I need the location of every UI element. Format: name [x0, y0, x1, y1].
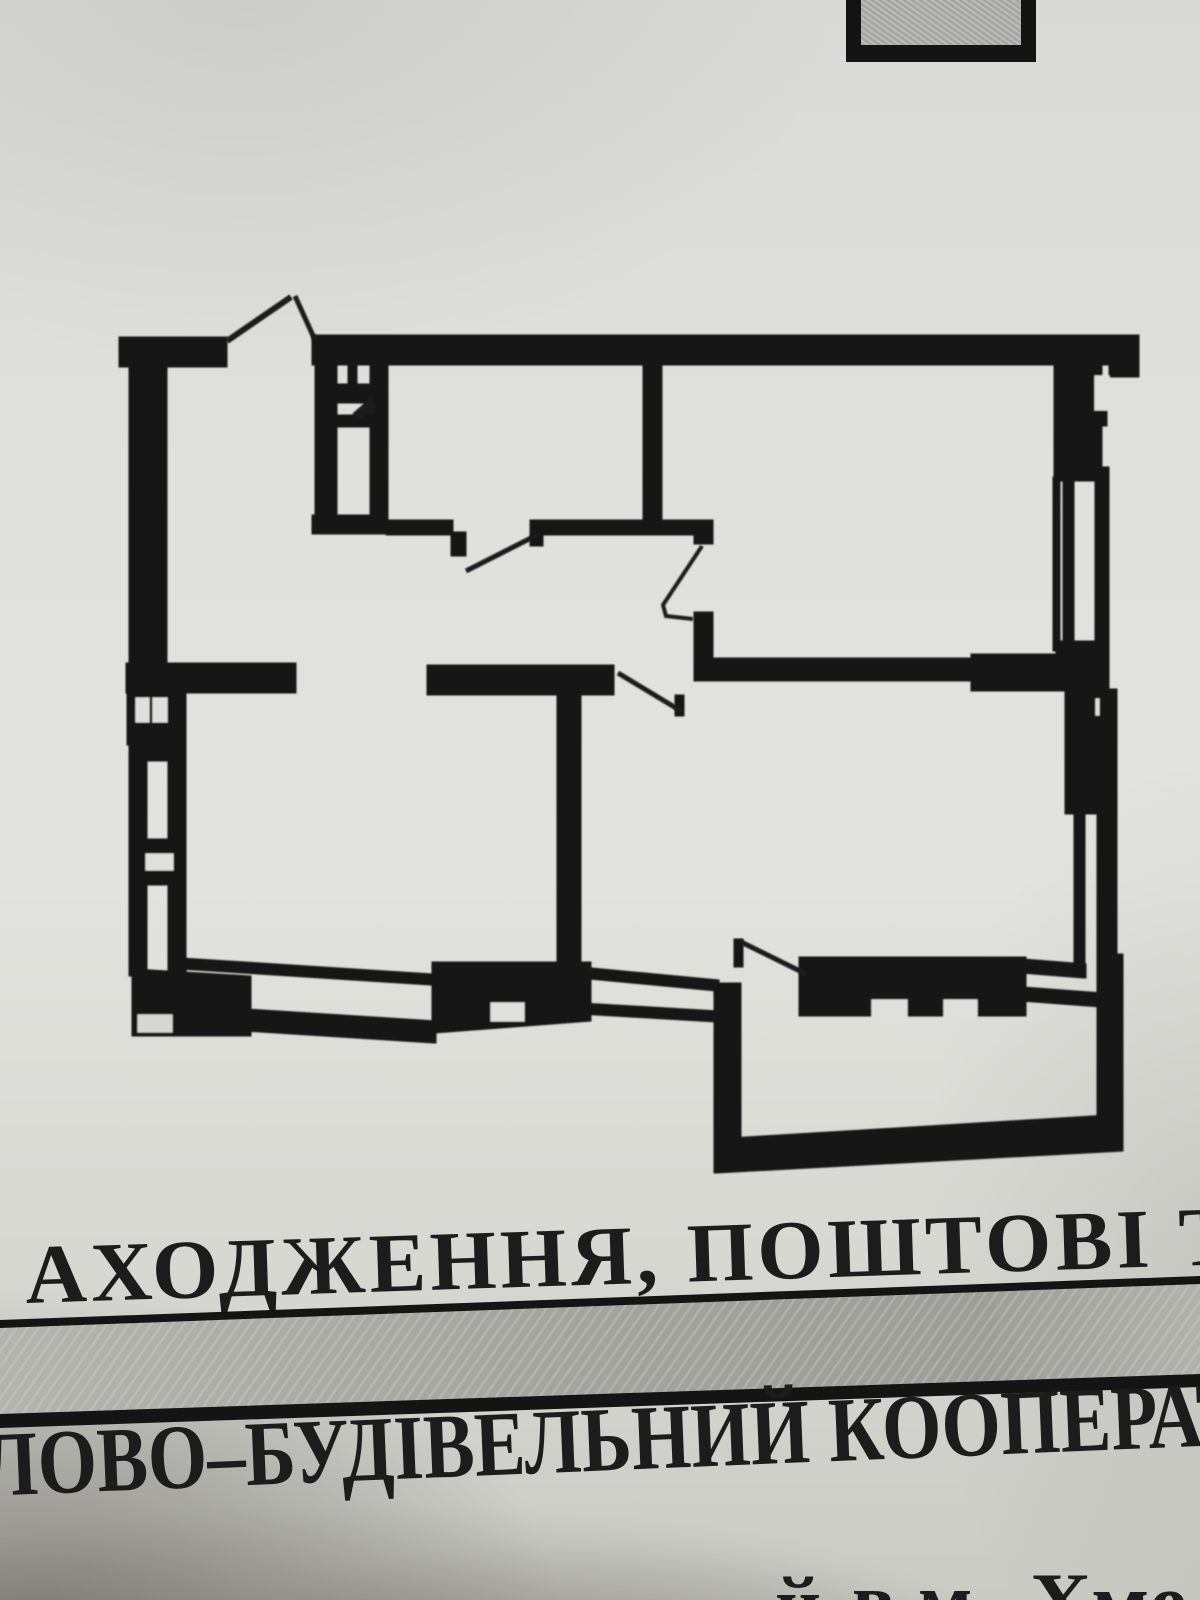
svg-text:в: в [852, 1558, 895, 1600]
svg-text:м.: м. [918, 1558, 993, 1600]
svg-text:Хме: Хме [1030, 1556, 1187, 1600]
svg-text:й: й [775, 1562, 821, 1600]
